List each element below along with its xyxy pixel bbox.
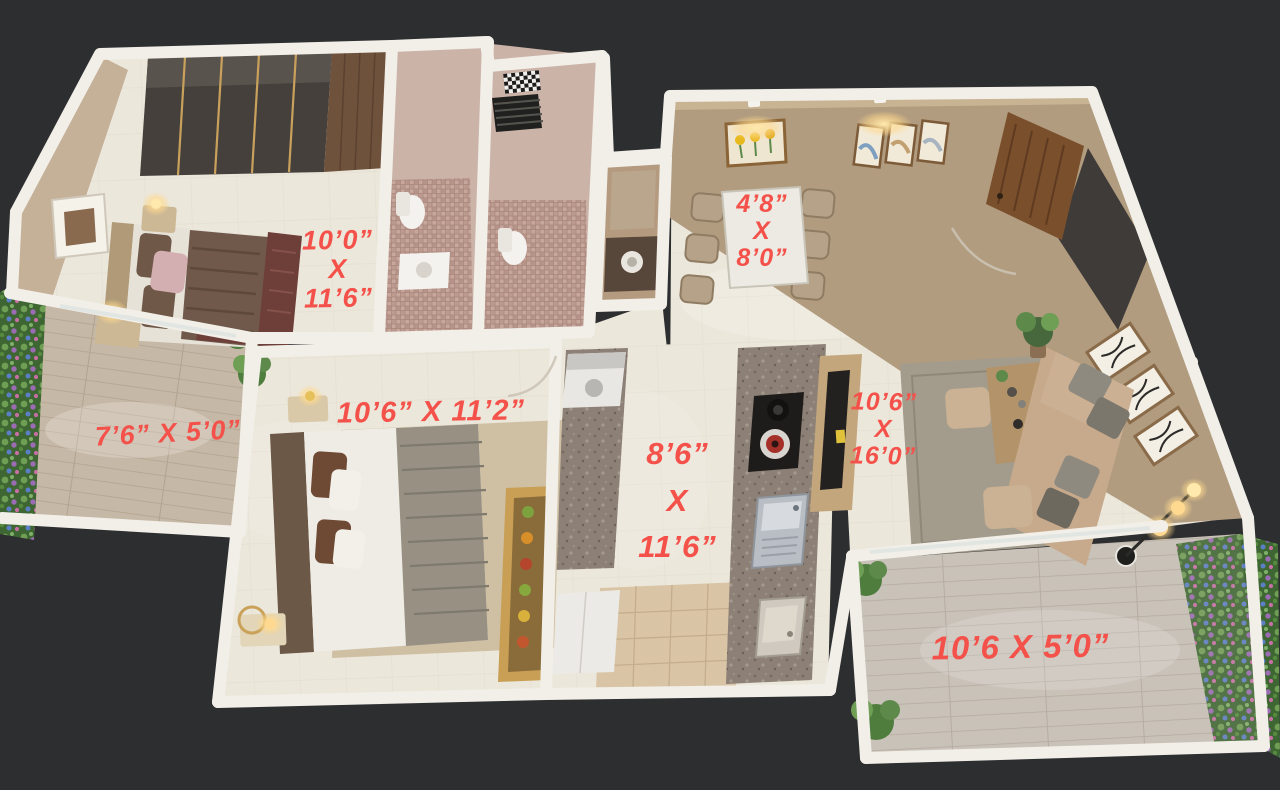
dimension-line: 8’6” <box>610 431 745 478</box>
bedroom-2-bed <box>270 424 489 654</box>
dimension-line: X <box>258 254 418 286</box>
dimension-label-balcony-right: 10’6 X 5’0” <box>898 627 1144 667</box>
floor-plan-scene: 10’0” X 11’6” 4’8” X 8’0” 7’6” X 5’0” 10… <box>0 0 1280 790</box>
dimension-line: 10’0” <box>257 225 417 257</box>
floor-plan-render <box>0 0 1280 790</box>
ottoman-1 <box>945 387 992 430</box>
dimension-line: 10’6” <box>826 388 941 417</box>
kitchen-cabinet-white <box>552 590 620 674</box>
dimension-line: X <box>610 478 745 525</box>
dimension-line: X <box>826 415 941 444</box>
utility-sink <box>756 597 806 657</box>
dimension-line: 10’6” X 11’2” <box>320 395 543 430</box>
dimension-label-dining: 4’8” X 8’0” <box>702 191 822 272</box>
dimension-line: 4’8” <box>702 191 822 218</box>
dimension-label-bedroom-2: 10’6” X 11’2” <box>320 395 543 430</box>
gas-stove <box>748 392 804 472</box>
ottoman-2 <box>983 484 1034 529</box>
master-bedroom-art <box>52 194 108 258</box>
dimension-label-kitchen: 8’6” X 11’6” <box>610 431 745 571</box>
dimension-line: 16’0” <box>825 442 940 471</box>
dimension-label-master-bedroom: 10’0” X 11’6” <box>257 225 419 315</box>
dimension-label-living-room: 10’6” X 16’0” <box>825 388 941 471</box>
wardrobe <box>140 50 392 176</box>
dimension-line: 8’0” <box>702 245 822 272</box>
dimension-line: X <box>702 218 822 245</box>
dimension-line: 11’6” <box>610 524 745 571</box>
washing-machine <box>562 352 626 408</box>
dimension-line: 11’6” <box>258 283 418 315</box>
kitchen-sink <box>752 494 808 568</box>
dimension-line: 10’6 X 5’0” <box>898 627 1144 667</box>
